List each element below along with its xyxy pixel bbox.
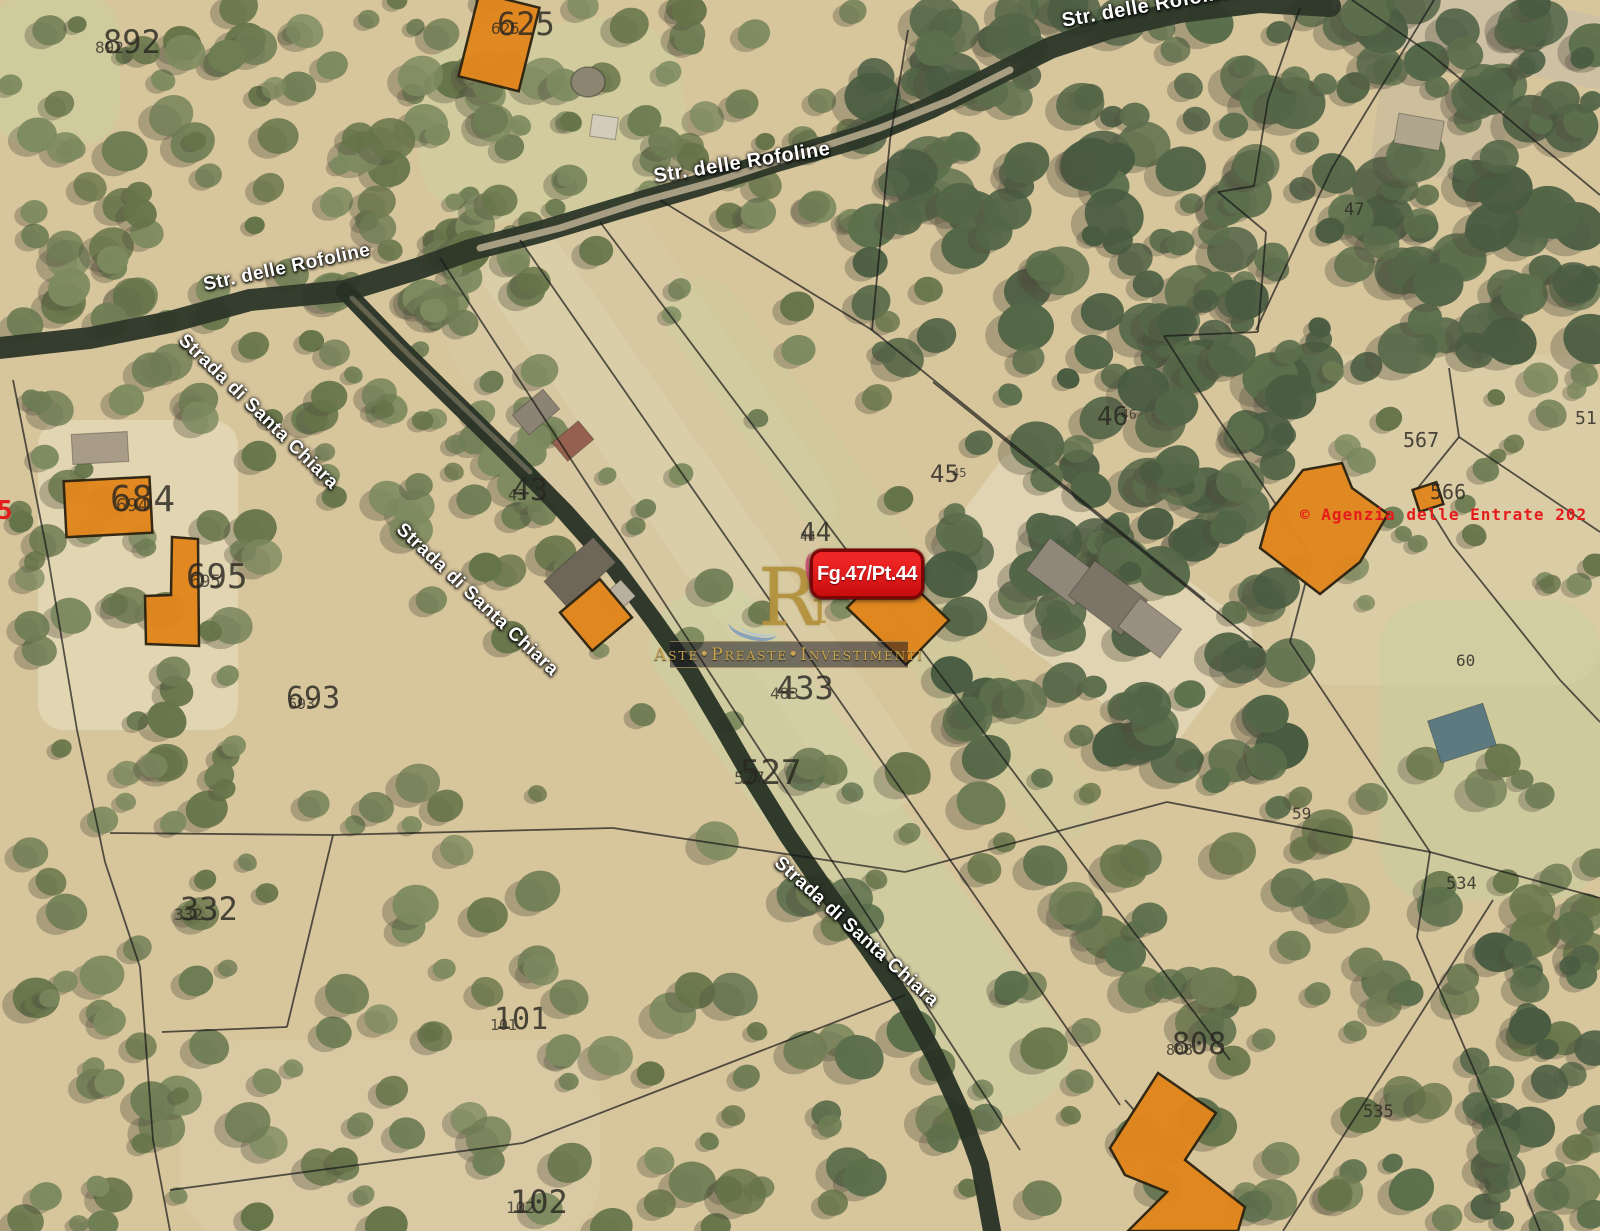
road-name-label: Str. delle Rofoline bbox=[652, 138, 832, 189]
parcel-number-label: 4444 bbox=[800, 520, 831, 546]
clipped-red-text: 5 bbox=[0, 496, 13, 526]
road-name-label: Strada di Santa Chiara bbox=[391, 519, 562, 681]
parcel-number-label: 625625 bbox=[497, 8, 555, 40]
parcel-number-label: 4545 bbox=[930, 462, 959, 486]
watermark-brand-text: Aste•Preaste•Investimenti bbox=[670, 641, 908, 668]
road-name-label: Str. delle Rofoline bbox=[202, 240, 373, 297]
copyright-text: © Agenzia delle Entrate 202 bbox=[1300, 505, 1587, 524]
parcel-number-label: 102102 bbox=[510, 1186, 568, 1218]
parcel-number-label: 693693 bbox=[286, 684, 340, 714]
parcel-number-label: 695695 bbox=[186, 560, 247, 594]
parcel-number-label: 534 bbox=[1446, 876, 1477, 893]
parcel-number-label: 4343 bbox=[512, 476, 548, 506]
parcel-number-label: 47 bbox=[1344, 202, 1364, 219]
parcel-number-label: 527527 bbox=[740, 756, 801, 790]
road-name-label: Strada di Santa Chiara bbox=[769, 852, 943, 1011]
parcel-number-label: 566 bbox=[1430, 482, 1466, 502]
parcel-number-label: 101101 bbox=[494, 1005, 548, 1035]
parcel-number-label: 59 bbox=[1292, 806, 1311, 822]
parcel-number-label: 4646 bbox=[1097, 404, 1128, 430]
road-name-label: Str. delle Rofoline bbox=[1060, 0, 1240, 33]
cadastral-map-canvas[interactable]: 8928926256256846946956956936934343444445… bbox=[0, 0, 1600, 1231]
parcel-number-label: 332332 bbox=[180, 893, 238, 925]
parcel-number-label: 684694 bbox=[110, 482, 175, 518]
parcel-number-label: 60 bbox=[1456, 653, 1475, 669]
parcel-number-label: 51 bbox=[1575, 410, 1597, 428]
road-name-label: Strada di Santa Chiara bbox=[173, 330, 342, 494]
parcel-number-label: 433483 bbox=[776, 672, 834, 704]
parcel-number-label: 892892 bbox=[103, 26, 161, 58]
parcel-number-label: 535 bbox=[1363, 1104, 1394, 1121]
plot-reference-badge: Fg.47/Pt.44 bbox=[810, 549, 924, 599]
parcel-number-label: 808808 bbox=[1172, 1030, 1226, 1060]
parcel-number-label: 567 bbox=[1403, 430, 1439, 450]
